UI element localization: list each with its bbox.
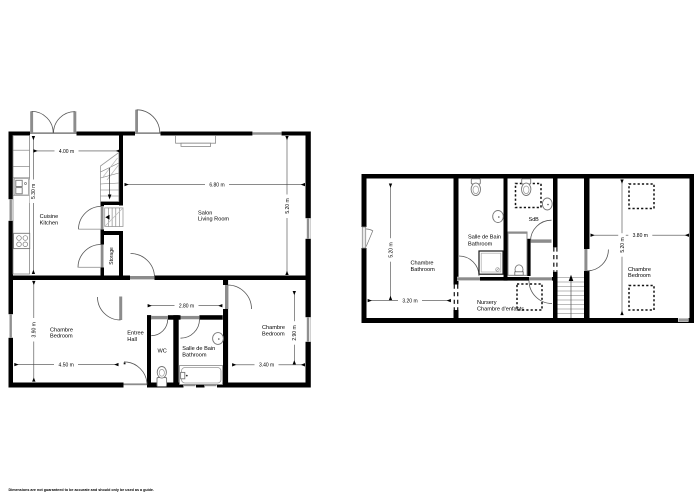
svg-text:Bedroom: Bedroom (50, 334, 73, 340)
svg-text:Bathroom: Bathroom (411, 267, 436, 273)
svg-text:Entree: Entree (127, 331, 143, 337)
svg-text:4.00 m: 4.00 m (59, 149, 74, 155)
svg-text:Bathroom: Bathroom (468, 241, 493, 247)
svg-text:5.20 m: 5.20 m (620, 237, 626, 252)
svg-text:2.90 m: 2.90 m (292, 325, 298, 340)
svg-text:Bedroom: Bedroom (628, 273, 651, 279)
svg-text:Salon: Salon (198, 210, 212, 216)
svg-text:Salle de Bain: Salle de Bain (182, 346, 215, 352)
svg-text:Bathroom: Bathroom (182, 353, 207, 359)
svg-text:3.40 m: 3.40 m (259, 363, 274, 369)
svg-text:3.80 m: 3.80 m (633, 233, 648, 239)
svg-text:Cuisine: Cuisine (40, 214, 59, 220)
svg-text:Storage: Storage (109, 247, 115, 265)
svg-text:5.20 m: 5.20 m (388, 242, 394, 257)
svg-text:3.20 m: 3.20 m (402, 298, 417, 304)
svg-text:Chambre: Chambre (262, 325, 285, 331)
svg-text:SdB: SdB (529, 217, 540, 223)
svg-text:Chambre: Chambre (628, 267, 651, 273)
svg-text:Chambre d'enfants: Chambre d'enfants (477, 306, 524, 312)
svg-text:6.80 m: 6.80 m (209, 183, 224, 189)
svg-text:Bedroom: Bedroom (262, 332, 285, 338)
svg-text:WC: WC (158, 349, 167, 355)
svg-text:3.90 m: 3.90 m (32, 322, 38, 337)
svg-text:5.30 m: 5.30 m (31, 184, 37, 199)
svg-text:Kitchen: Kitchen (40, 221, 59, 227)
svg-text:Dimensions are not guaranteed: Dimensions are not guaranteed to be accu… (9, 488, 154, 492)
svg-text:Nursery: Nursery (477, 300, 497, 306)
svg-text:5.20 m: 5.20 m (285, 198, 291, 213)
svg-text:Hall: Hall (127, 337, 137, 343)
svg-text:Salle de Bain: Salle de Bain (468, 235, 501, 241)
svg-text:Chambre: Chambre (411, 261, 434, 267)
svg-text:4.50 m: 4.50 m (59, 362, 74, 368)
svg-text:2.80 m: 2.80 m (179, 304, 194, 310)
svg-text:Living Room: Living Room (198, 217, 229, 223)
svg-text:Chambre: Chambre (50, 327, 73, 333)
